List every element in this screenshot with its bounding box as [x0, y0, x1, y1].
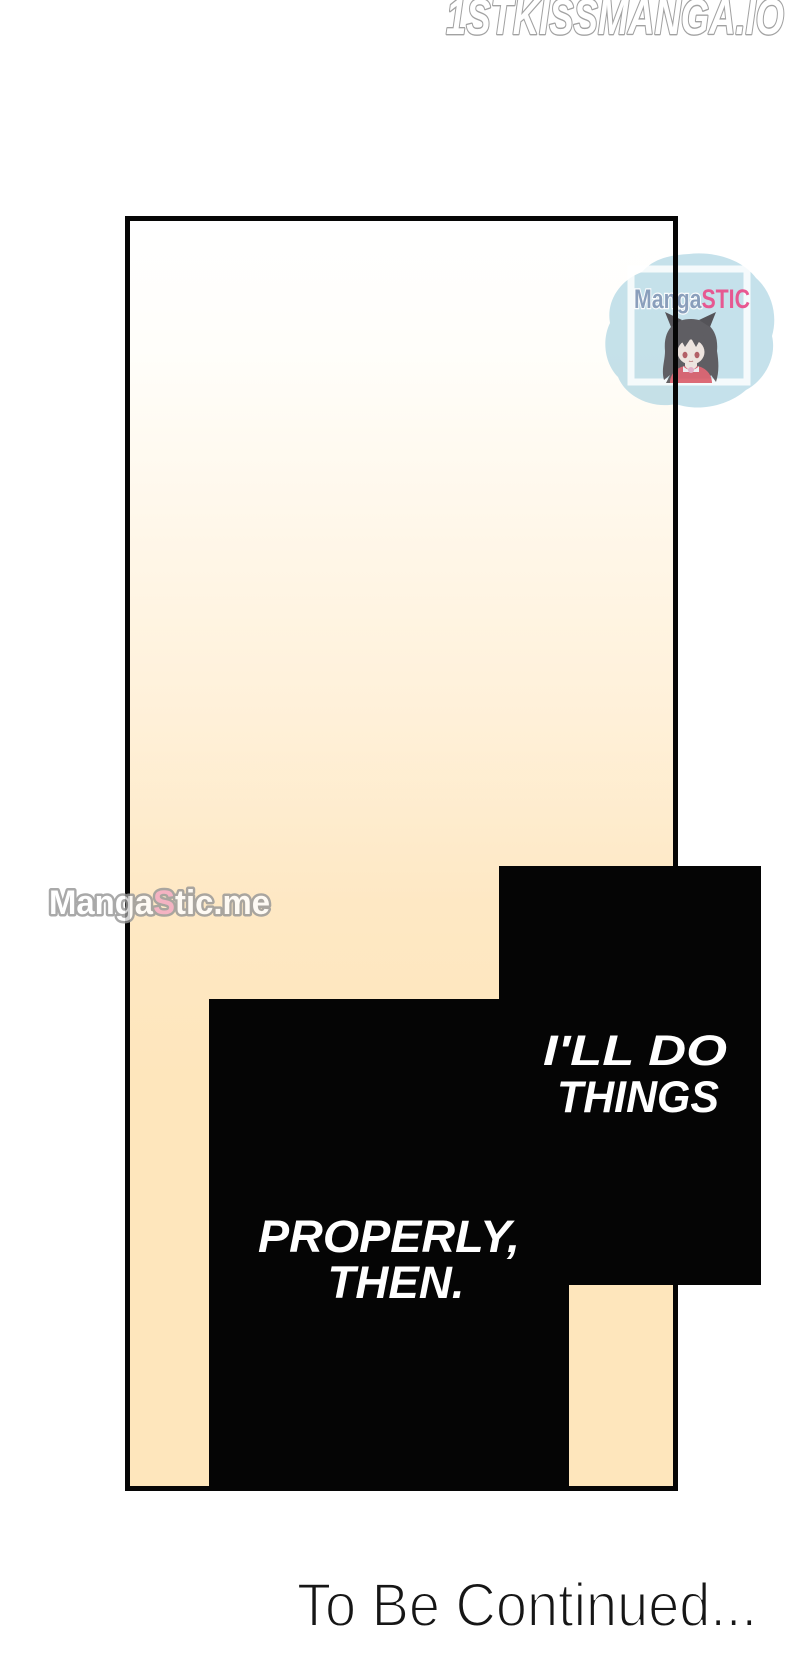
svg-text:THINGS: THINGS [557, 1073, 719, 1122]
svg-text:PROPERLY,: PROPERLY, [258, 1211, 520, 1262]
svg-text:1STKISSMANGA.IO: 1STKISSMANGA.IO [446, 0, 784, 45]
svg-text:THEN.: THEN. [328, 1257, 465, 1308]
svg-text:To Be Continued...: To Be Continued... [297, 1571, 757, 1639]
svg-text:MangaStic.me: MangaStic.me [49, 884, 270, 922]
svg-text:I'LL DO: I'LL DO [543, 1027, 727, 1075]
